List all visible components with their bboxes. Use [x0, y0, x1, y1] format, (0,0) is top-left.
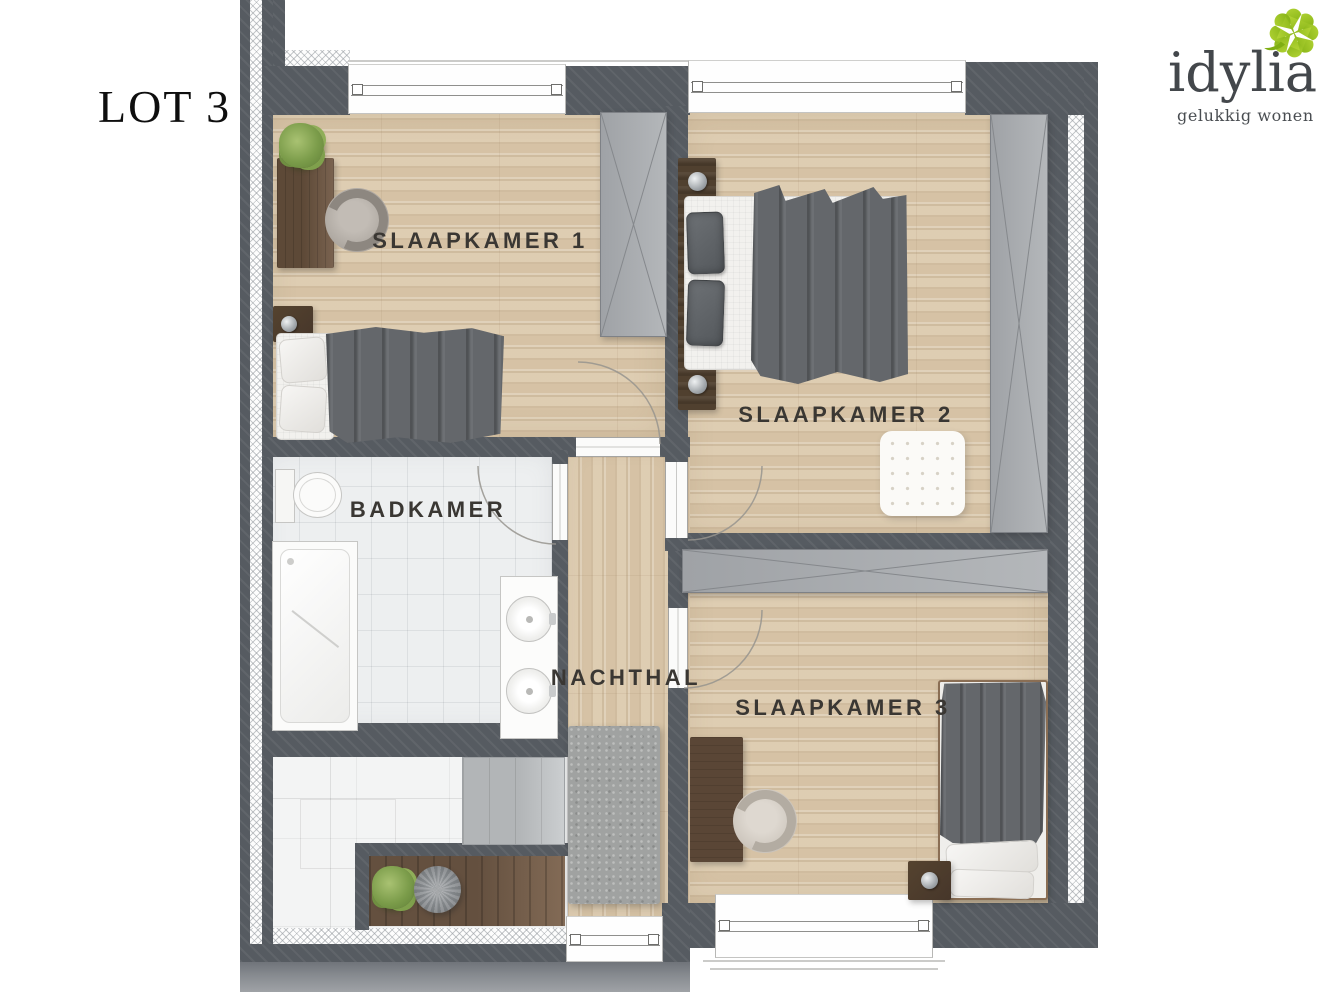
bedside-lamp-slaapkamer3 [921, 872, 938, 889]
window-sill-line-bottom [703, 960, 945, 962]
room-label-slaapkamer-3: SLAAPKAMER 3 [735, 695, 951, 721]
window-hinge-mark [692, 81, 703, 92]
room-label-slaapkamer-2: SLAAPKAMER 2 [738, 402, 954, 428]
doorway-slaapkamer1 [576, 437, 660, 457]
brand-name: idylia [1168, 46, 1317, 100]
room-label-badkamer: BADKAMER [350, 497, 506, 523]
bedside-lamp-slaapkamer2 [688, 375, 707, 394]
room-label-slaapkamer-1: SLAAPKAMER 1 [372, 228, 588, 254]
wall-right-inner [1048, 62, 1068, 948]
toilet-bowl [293, 472, 342, 518]
desk-slaapkamer3 [690, 737, 743, 862]
toilet-cistern [275, 469, 295, 523]
window-frame [691, 82, 963, 93]
shower-drain [287, 558, 294, 565]
runner-rug-nachthal [568, 726, 660, 904]
plant-slaapkamer1 [279, 123, 324, 168]
dotted-rug-slaapkamer2 [880, 431, 965, 516]
bedside-lamp-slaapkamer2 [688, 172, 707, 191]
wall-top-left-column [273, 0, 285, 66]
knitted-pouf [414, 866, 461, 913]
wall-badkamer-east-upper [552, 450, 568, 464]
bedside-lamp-slaapkamer1 [281, 316, 297, 332]
vanity-double-sink [500, 576, 558, 739]
brand-tagline: gelukkig wonen [1177, 106, 1314, 125]
window-hinge-mark [719, 920, 730, 931]
pillow [278, 384, 327, 433]
window-hinge-mark [551, 84, 562, 95]
doorway-slaapkamer2 [665, 462, 688, 538]
desk-chair-slaapkamer3 [733, 789, 797, 853]
closet-stairwell [462, 757, 565, 845]
window-hinge-mark [951, 81, 962, 92]
wall-left-outer [240, 0, 250, 962]
window-frame [569, 935, 660, 946]
sideboard-cross-lines [683, 550, 1047, 592]
wall-bottom-pillar [662, 903, 690, 962]
doorway-badkamer [552, 464, 568, 540]
single-bed-slaapkamer1 [276, 333, 334, 440]
window-nachthal [566, 916, 663, 962]
window-frame [718, 921, 930, 932]
pillow [686, 211, 725, 274]
wall-slaapkamer3-west-lower [668, 688, 688, 905]
wall-left-inner [262, 0, 273, 962]
pillow [278, 336, 328, 384]
lower-roof-terrace [240, 962, 690, 992]
wall-right-outer [1084, 62, 1098, 948]
insulation-right [1068, 70, 1084, 930]
shower-tray [272, 541, 358, 731]
wardrobe-slaapkamer1 [600, 112, 667, 337]
window-hinge-mark [570, 934, 581, 945]
wardrobe-cross-lines [991, 115, 1047, 532]
sink-basin [506, 596, 552, 642]
window-sill-line-bottom [710, 968, 938, 970]
window-slaapkamer3 [715, 894, 933, 958]
window-slaapkamer2 [688, 60, 966, 113]
window-slaapkamer1 [348, 64, 566, 114]
wall-slaapkamer1-south-left [262, 437, 576, 457]
lot-title: LOT 3 [98, 80, 231, 133]
room-label-nachthal: NACHTHAL [551, 665, 701, 691]
duvet-slaapkamer2 [751, 185, 908, 384]
pillow [686, 279, 725, 346]
window-frame [351, 85, 563, 96]
pillow [950, 869, 1035, 900]
window-hinge-mark [352, 84, 363, 95]
toilet-bowl-inner [299, 478, 336, 512]
sideboard-slaapkamer3 [682, 549, 1048, 593]
faucet [549, 613, 556, 625]
single-bed-slaapkamer3 [938, 680, 1048, 900]
wardrobe-slaapkamer2 [990, 114, 1048, 533]
floorplan-page: SLAAPKAMER 1 SLAAPKAMER 2 BADKAMER NACHT… [0, 0, 1333, 1000]
wall-niche-left [355, 843, 369, 930]
window-hinge-mark [918, 920, 929, 931]
duvet-slaapkamer1 [326, 327, 504, 443]
plant-niche [372, 866, 415, 909]
sink-basin [506, 668, 552, 714]
shower-tray-inner [280, 549, 350, 723]
window-hinge-mark [648, 934, 659, 945]
duvet-slaapkamer3 [940, 682, 1046, 848]
wall-top-right [965, 62, 1098, 115]
wall-top-left [262, 66, 350, 115]
wardrobe-cross-lines [601, 113, 666, 336]
